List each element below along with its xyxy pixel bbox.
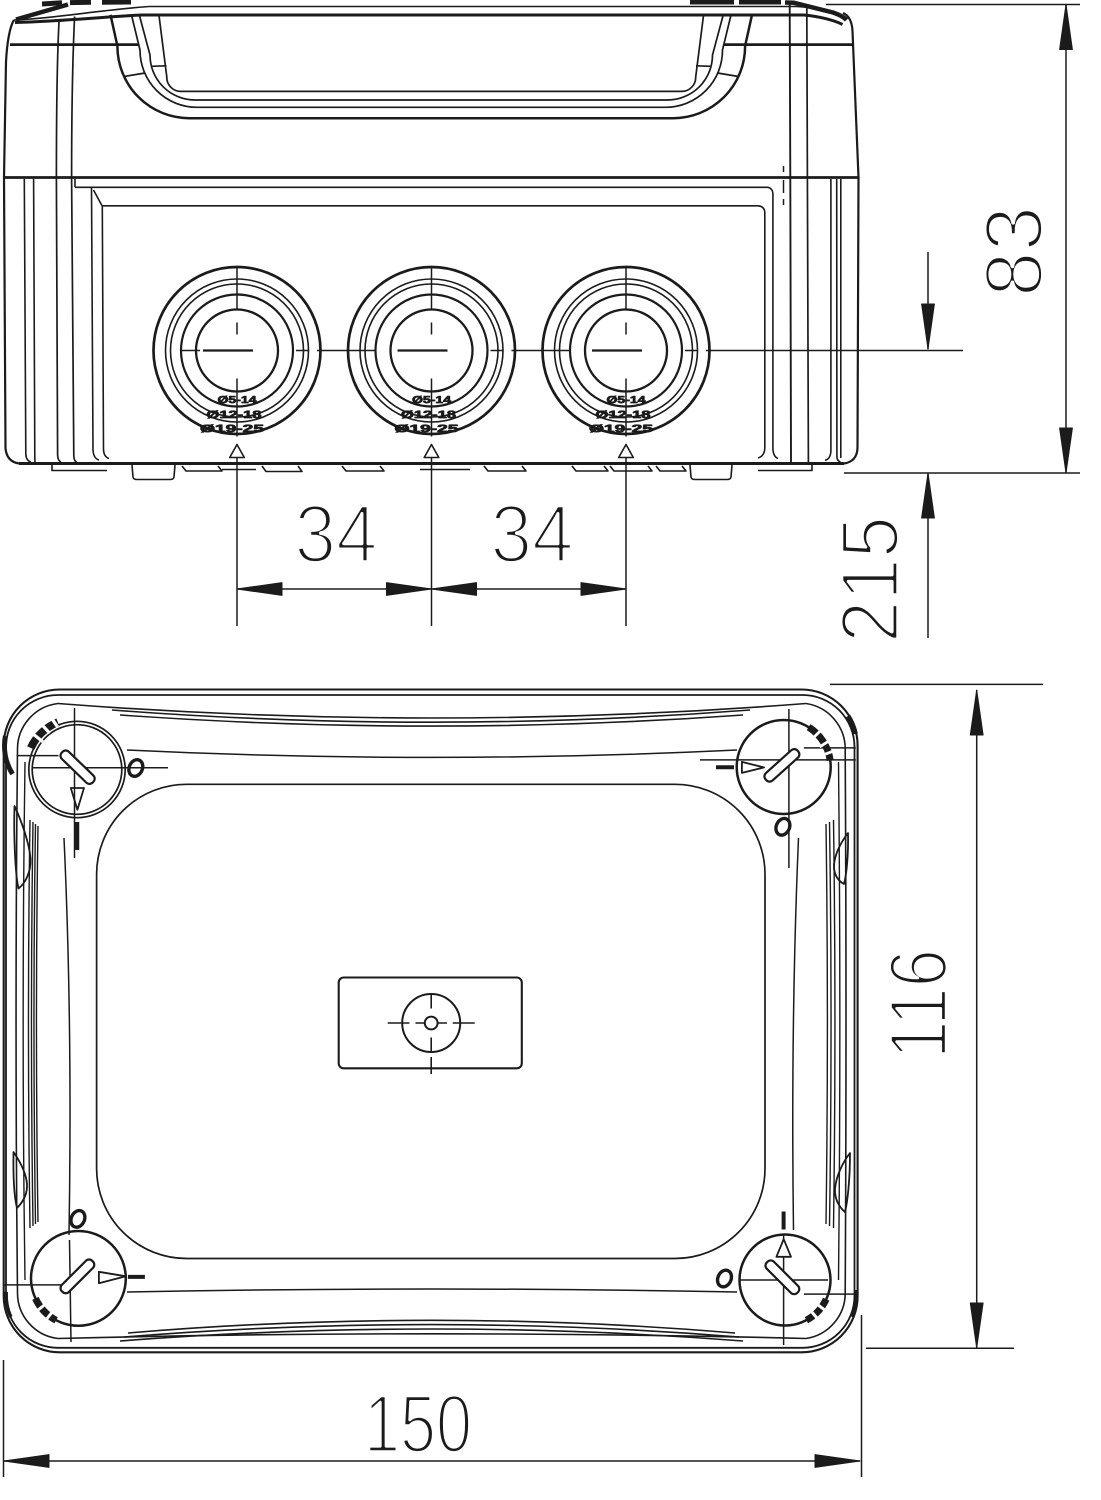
svg-text:34: 34 (295, 489, 378, 580)
svg-text:34: 34 (491, 489, 574, 580)
svg-text:Ø12-18: Ø12-18 (207, 409, 262, 421)
svg-text:Ø19-25: Ø19-25 (589, 423, 653, 435)
svg-text:Ø5-14: Ø5-14 (218, 395, 258, 406)
svg-text:Ø5-14: Ø5-14 (412, 395, 452, 406)
svg-text:150: 150 (364, 1379, 472, 1470)
svg-text:Ø5-14: Ø5-14 (607, 395, 647, 406)
svg-text:83: 83 (969, 206, 1060, 297)
svg-text:215: 215 (825, 516, 916, 643)
svg-text:Ø19-25: Ø19-25 (200, 423, 264, 435)
svg-text:116: 116 (874, 949, 965, 1059)
svg-text:Ø12-18: Ø12-18 (401, 409, 456, 421)
svg-text:Ø19-25: Ø19-25 (395, 423, 459, 435)
svg-text:Ø12-18: Ø12-18 (596, 409, 651, 421)
